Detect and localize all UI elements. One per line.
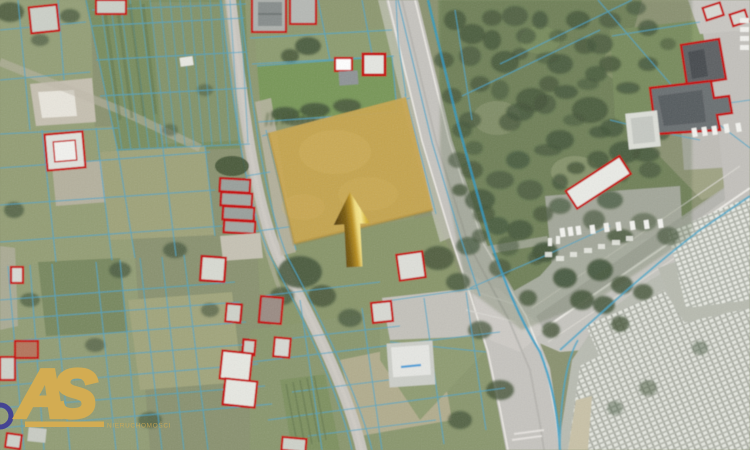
svg-text:AS: AS (15, 356, 97, 432)
svg-text:NIERUCHOMOŚCI: NIERUCHOMOŚCI (107, 421, 171, 430)
